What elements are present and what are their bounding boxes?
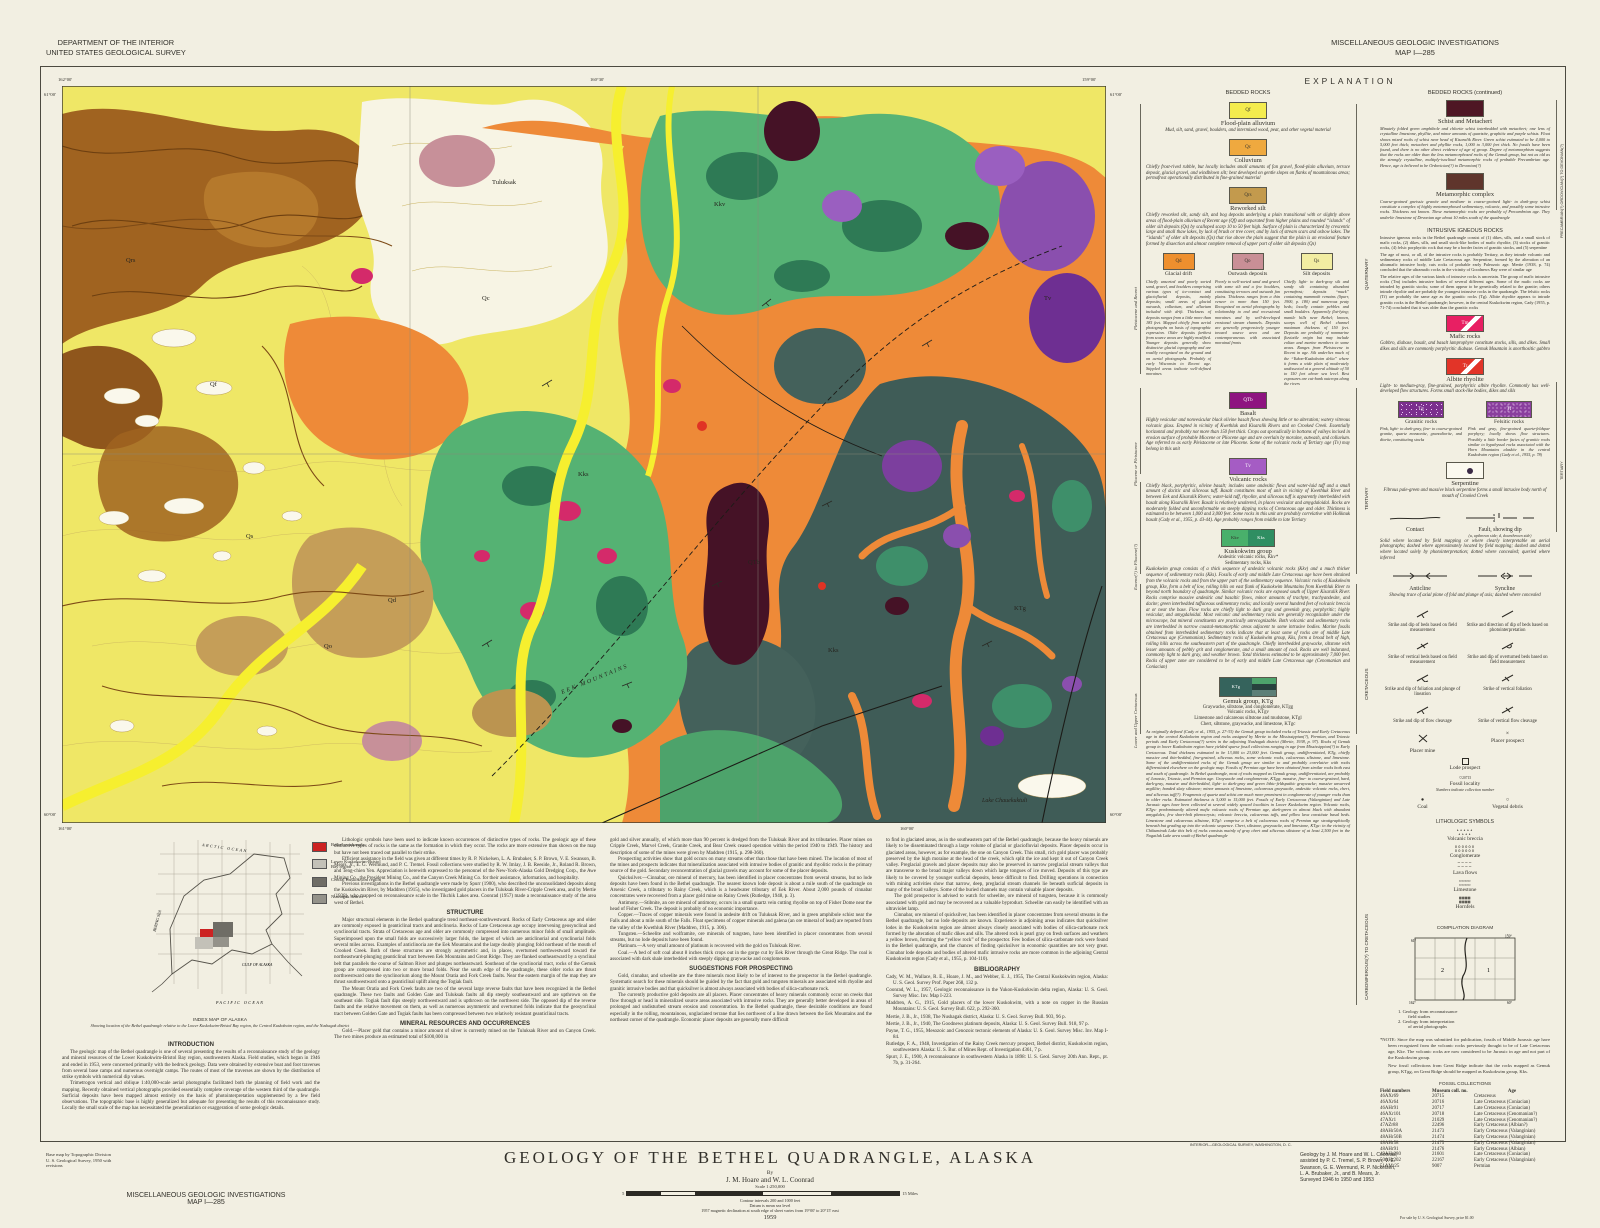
svg-text:d: d bbox=[1493, 518, 1495, 522]
pacific-ocean-label: PACIFIC OCEAN bbox=[215, 1000, 264, 1005]
strike-icon bbox=[1501, 641, 1515, 650]
swatch-meta bbox=[1446, 173, 1484, 190]
bedded-cont-title: BEDDED ROCKS (continued) bbox=[1380, 90, 1550, 96]
code-kks: Kks bbox=[1248, 530, 1274, 546]
desc-qd: Chiefly unsorted and poorly sorted sand,… bbox=[1146, 279, 1211, 376]
geology-credit: Geology by J. M. Hoare and W. L. Coonrad… bbox=[1300, 1152, 1480, 1183]
desc-qc: Chiefly frost-rived rubble, but locally … bbox=[1146, 165, 1350, 182]
desc-kuskokwim: Kuskokwim group consists of a thick sequ… bbox=[1146, 567, 1350, 670]
svg-text:Qs: Qs bbox=[246, 533, 254, 540]
strike-icon bbox=[1501, 705, 1515, 714]
col3-p8: Coal.—A bed of soft coal about 8 inches … bbox=[610, 951, 872, 964]
gemuk-subcells bbox=[1252, 678, 1276, 696]
strike-label: Strike of vertical foliation bbox=[1465, 687, 1550, 692]
placer-row: Placer mine ×Placer prospect bbox=[1380, 730, 1550, 754]
nushagak-swatch bbox=[312, 894, 327, 904]
code-qo: Qo bbox=[1244, 259, 1250, 264]
name-tv: Volcanic rocks bbox=[1146, 476, 1350, 483]
legend-unit-tv: Tv Volcanic rocks Chiefly black, porphyr… bbox=[1146, 458, 1350, 524]
lith-lava-flows: ∼∼∼∼∼∼∼∼ Lava flows bbox=[1380, 862, 1550, 876]
col4-p1: to find in glaciated areas, as in the so… bbox=[886, 838, 1108, 894]
strike-beds-field: Strike and dip of beds based on field me… bbox=[1380, 605, 1465, 633]
code-qc: Qc bbox=[1245, 145, 1251, 150]
outwash-patch-n bbox=[419, 135, 495, 187]
vegetal-label: Vegetal debris bbox=[1465, 804, 1550, 810]
desc-granitic: Pink, light- to dark-gray, fine- to coar… bbox=[1380, 426, 1462, 441]
strike-row-3: Strike and dip of foliation and plunge o… bbox=[1380, 669, 1550, 697]
svg-text:61°: 61° bbox=[1411, 939, 1417, 943]
bibliography-entry: Spurr, J. E., 1900, A reconnaissance in … bbox=[886, 1055, 1108, 1067]
strike-row-2: Strike of vertical beds based on field m… bbox=[1380, 637, 1550, 665]
series-header: MISCELLANEOUS GEOLOGIC INVESTIGATIONS MA… bbox=[1250, 38, 1580, 57]
age-tertiary-intrusive: TERTIARY bbox=[1560, 461, 1564, 480]
name-qf: Flood-plain alluvium bbox=[1146, 120, 1350, 127]
desc-gemuk: As originally defined (Cady et al., 1955… bbox=[1146, 729, 1350, 839]
strike-label: Strike of vertical flow cleavage bbox=[1465, 719, 1550, 724]
swatch-albite: Tr bbox=[1446, 358, 1484, 375]
dept-line2: UNITED STATES GEOLOGICAL SURVEY bbox=[46, 48, 186, 58]
svg-text:1: 1 bbox=[1487, 968, 1490, 974]
swatch-mafic: Tm bbox=[1446, 315, 1484, 332]
footer-series1: MISCELLANEOUS GEOLOGIC INVESTIGATIONS bbox=[46, 1192, 366, 1199]
svg-text:QTb: QTb bbox=[748, 559, 760, 566]
tick-right-top: 61°00' bbox=[1110, 92, 1122, 98]
bibliography-entry: Payne, T. G., 1955, Mesozoic and Cenozoi… bbox=[886, 1029, 1108, 1041]
swatch-qtb: QTb bbox=[1229, 392, 1267, 409]
strike-flow-cleavage: Strike and dip of flow cleavage bbox=[1380, 701, 1465, 724]
strike-icon bbox=[1501, 609, 1515, 618]
bracket-cretaceous bbox=[1356, 584, 1357, 734]
svg-text:159°: 159° bbox=[1505, 935, 1512, 939]
fossil-table-title: FOSSIL COLLECTIONS bbox=[1380, 1082, 1550, 1087]
title-scale: Scale 1:250,000 bbox=[420, 1184, 1120, 1189]
intro-p1: The geologic map of the Bethel quadrangl… bbox=[62, 1050, 320, 1081]
structure-title: STRUCTURE bbox=[334, 910, 596, 916]
name-qs: Silt deposits bbox=[1284, 271, 1349, 277]
lith-label: Limestone bbox=[1380, 887, 1550, 893]
col3-p2: Prospecting activities show that gold oc… bbox=[610, 857, 872, 876]
intrusive-p1: Intrusive igneous rocks in the Bethel qu… bbox=[1380, 235, 1550, 251]
lith-label: Lava flows bbox=[1380, 870, 1550, 876]
age-carb: CARBONIFEROUS(?) TO CRETACEOUS bbox=[1364, 914, 1370, 1000]
strike-label: Strike and dip of overturned beds based … bbox=[1465, 655, 1550, 665]
outwash-patch-s bbox=[362, 721, 422, 761]
conglomerate-icon: oooooooooooo bbox=[1380, 845, 1550, 853]
svg-text:60°: 60° bbox=[1507, 1001, 1513, 1005]
tick-top-right: 159°00' bbox=[1082, 77, 1096, 83]
strike-icon bbox=[1416, 641, 1430, 650]
volcanic-breccia-icon: ▴▴▴▴▴▴▴▴▴ bbox=[1380, 828, 1550, 836]
placer-prospect-item: ×Placer prospect bbox=[1465, 730, 1550, 754]
code-qf: Qf bbox=[1245, 108, 1250, 113]
compilation-item2b: of aerial photographs bbox=[1408, 1024, 1550, 1029]
name-kuskokwim: Kuskokwim group bbox=[1146, 548, 1350, 555]
lode-prospect-icon bbox=[1462, 758, 1469, 765]
legend-unit-albite: Tr Albite rhyolite Light- to medium-gray… bbox=[1380, 358, 1550, 396]
code-tv: Tv bbox=[1245, 464, 1251, 469]
intro-p2: Trimetrogon vertical and oblique 1:40,00… bbox=[62, 1081, 320, 1112]
basemap-line1: Base map by Topographic Division bbox=[46, 1152, 111, 1158]
bedded-rocks-title: BEDDED ROCKS bbox=[1146, 90, 1350, 96]
col3-p1: gold and silver annually, of which more … bbox=[610, 838, 872, 857]
footer-series2: MAP I—285 bbox=[46, 1199, 366, 1206]
map-title: GEOLOGY OF THE BETHEL QUADRANGLE, ALASKA bbox=[420, 1148, 1120, 1168]
strike-row-1: Strike and dip of beds based on field me… bbox=[1380, 605, 1550, 633]
legend-unit-qd: Qd Glacial drift Chiefly unsorted and po… bbox=[1146, 253, 1211, 386]
legend-unit-meta: Metamorphic complex Coarse-grained gneis… bbox=[1380, 173, 1550, 220]
legend-unit-qc: Qc Colluvium Chiefly frost-rived rubble,… bbox=[1146, 139, 1350, 182]
sugg-p2: The currently productive gold deposits a… bbox=[610, 993, 872, 1024]
bibliography-entry: Maddren, A. G., 1915, Gold placers of th… bbox=[886, 1001, 1108, 1013]
label-tuluksak: Tuluksak bbox=[492, 179, 517, 186]
central-kuskokwim-highlight bbox=[213, 922, 233, 937]
swatch-qo: Qo bbox=[1232, 253, 1264, 270]
col2-p3: Previous investigations in the Bethel qu… bbox=[334, 882, 596, 907]
bibliography-entry: Cady, W. M., Wallace, R. E., Hoare, J. M… bbox=[886, 975, 1108, 987]
desc-qrs: Chiefly reworked silt, sandy silt, and b… bbox=[1146, 213, 1350, 247]
strike-label: Strike and dip of foliation and plunge o… bbox=[1380, 687, 1465, 697]
syncline-item: Syncline bbox=[1460, 568, 1550, 592]
desc-qs: Chiefly light- to dark-gray silt and san… bbox=[1284, 279, 1349, 387]
swatch-gemuk: KTg bbox=[1219, 677, 1277, 697]
tick-bot-left: 161°00' bbox=[58, 826, 72, 832]
syncline-icon bbox=[1477, 571, 1533, 581]
name-meta: Metamorphic complex bbox=[1380, 191, 1550, 198]
fossil-sub: Numbers indicate collection number bbox=[1380, 787, 1550, 792]
svg-text:Qc: Qc bbox=[482, 295, 490, 302]
code-kkv: Kkv bbox=[1222, 530, 1248, 546]
scale-label: 5 bbox=[622, 1191, 624, 1196]
desc-schist: Minutely folded green amphibole and chlo… bbox=[1380, 126, 1550, 168]
column-minerals: gold and silver annually, of which more … bbox=[610, 838, 872, 1024]
coal-label: Coal bbox=[1380, 804, 1465, 810]
dept-line1: DEPARTMENT OF THE INTERIOR bbox=[46, 38, 186, 48]
col2-p2: Efficient assistance in the field was gi… bbox=[334, 857, 596, 882]
name-granitic: Granitic rocks bbox=[1380, 419, 1462, 425]
intrusive-title: INTRUSIVE IGNEOUS ROCKS bbox=[1380, 228, 1550, 234]
tick-bot-mid: 160°00' bbox=[900, 826, 914, 832]
legend-unit-serpentine: Serpentine Fibrous pale-green and massiv… bbox=[1380, 462, 1550, 500]
age-cretaceous: CRETACEOUS bbox=[1364, 668, 1370, 700]
tick-top-mid: 160°30' bbox=[590, 77, 604, 83]
gulf-alaska-label: GULF OF ALASKA bbox=[242, 963, 273, 967]
svg-text:u: u bbox=[1493, 512, 1495, 517]
limestone-icon: ▭▭▭▭▭▭▭▭ bbox=[1380, 879, 1550, 887]
coast-extensions bbox=[152, 944, 302, 992]
legend-trio: Qd Glacial drift Chiefly unsorted and po… bbox=[1146, 253, 1350, 386]
bibliography-entry: Mertie, J. B., Jr., 1940, The Goodnews p… bbox=[886, 1022, 1108, 1028]
age-pliocene: Pliocene or Pleistocene bbox=[1133, 442, 1139, 486]
name-qo: Outwash deposits bbox=[1215, 271, 1280, 277]
fault-sub: (u, upthrown side; d, downthrown side) bbox=[1450, 533, 1550, 538]
sub-ktgc: Chert, siltstone, graywacke, and limesto… bbox=[1146, 722, 1350, 728]
swatch-serpentine bbox=[1446, 462, 1484, 479]
legend-unit-mafic: Tm Mafic rocks Gabbro, diabase, basalt, … bbox=[1380, 315, 1550, 353]
swatch-tv: Tv bbox=[1229, 458, 1267, 475]
structure-p1: Major structural elements in the Bethel … bbox=[334, 918, 596, 987]
contact-label: Contact bbox=[1380, 527, 1450, 533]
strike-icon bbox=[1416, 673, 1430, 682]
bracket-pliocene bbox=[1140, 388, 1141, 474]
scale-label-end: 15 Miles bbox=[902, 1191, 918, 1196]
legend-unit-kuskokwim: Kkv Kks Kuskokwim group Andesitic volcan… bbox=[1146, 529, 1350, 671]
central-swatch bbox=[312, 877, 327, 887]
placer-prospect-icon: × bbox=[1465, 730, 1550, 738]
desc-qf: Mud, silt, sand, gravel, boulders, and i… bbox=[1146, 128, 1350, 134]
desc-qo: Poorly to well-sorted sand and gravel wi… bbox=[1215, 279, 1280, 346]
bracket-precambrian bbox=[1556, 100, 1557, 210]
code-ktg: KTg bbox=[1220, 678, 1252, 696]
geologic-map: Qf Qrs Qs Qd Qc Qo Kkv Kks KTg Tv QTb Kk… bbox=[62, 86, 1106, 823]
nushagak-highlight bbox=[213, 937, 229, 947]
desc-mafic: Gabbro, diabase, basalt, and basalt lamp… bbox=[1380, 341, 1550, 352]
legend-unit-granitic: Tg Granitic rocks Pink, light- to dark-g… bbox=[1380, 401, 1462, 457]
bracket-eocene bbox=[1140, 482, 1141, 574]
swatch-granitic: Tg bbox=[1398, 401, 1444, 418]
bethel-swatch bbox=[312, 842, 327, 852]
age-quaternary: QUATERNARY bbox=[1364, 259, 1370, 290]
bracket-quaternary bbox=[1356, 104, 1357, 380]
strike-icon bbox=[1501, 673, 1515, 682]
bibliography-list: Cady, W. M., Wallace, R. E., Hoare, J. M… bbox=[886, 975, 1108, 1067]
name-schist: Schist and Metachert bbox=[1380, 118, 1550, 125]
strike-foliation: Strike and dip of foliation and plunge o… bbox=[1380, 669, 1465, 697]
contact-item: Contact bbox=[1380, 509, 1450, 538]
age-eocene: Eocene(?) to Pliocene(?) bbox=[1133, 544, 1139, 590]
introduction-title: INTRODUCTION bbox=[62, 1042, 320, 1048]
swatch-schist bbox=[1446, 100, 1484, 117]
contact-fault-row: Contact ud Fault, showing dip (u, upthro… bbox=[1380, 509, 1550, 538]
fossil-item: ○20715 Fossil locality Numbers indicate … bbox=[1380, 775, 1550, 792]
strike-icon bbox=[1416, 705, 1430, 714]
svg-text:Qf: Qf bbox=[210, 381, 218, 388]
lith-label: Volcanic breccia bbox=[1380, 836, 1550, 842]
scale-bar-segments bbox=[626, 1191, 900, 1196]
name-serpentine: Serpentine bbox=[1380, 480, 1550, 487]
lith-label: Conglomerate bbox=[1380, 853, 1550, 859]
strike-icon bbox=[1416, 609, 1430, 618]
svg-text:2: 2 bbox=[1441, 968, 1444, 974]
coal-icon: ● bbox=[1380, 797, 1465, 804]
mineral-p1: Gold.—Placer gold that contains a minor … bbox=[334, 1029, 596, 1042]
col4-p2: The gold prospector is advised to watch … bbox=[886, 894, 1108, 913]
code-mafic: Tm bbox=[1462, 321, 1469, 326]
title-authors: J. M. Hoare and W. L. Coonrad bbox=[420, 1176, 1120, 1184]
bracket-lowup bbox=[1140, 584, 1141, 734]
col2-p1: Lithologic symbols have been used to ind… bbox=[334, 838, 596, 857]
strike-vert-flow: Strike of vertical flow cleavage bbox=[1465, 701, 1550, 724]
arctic-ocean-label: ARCTIC OCEAN bbox=[201, 842, 248, 853]
mineral-title: MINERAL RESOURCES AND OCCURRENCES bbox=[334, 1021, 596, 1027]
strike-label: Strike of vertical beds based on field m… bbox=[1380, 655, 1465, 665]
svg-text:Kks: Kks bbox=[828, 647, 839, 654]
code-qtb: QTb bbox=[1243, 398, 1252, 403]
strike-label: Strike and direction of dip of beds base… bbox=[1465, 623, 1550, 633]
label-lake: Lake Chauekuktuli bbox=[981, 798, 1027, 804]
legend-unit-qrs: Qrs Reworked silt Chiefly reworked silt,… bbox=[1146, 187, 1350, 247]
name-qc: Colluvium bbox=[1146, 157, 1350, 164]
series-line2: MAP I—285 bbox=[1250, 48, 1580, 58]
strike-beds-photo: Strike and direction of dip of beds base… bbox=[1465, 605, 1550, 633]
title-block: GEOLOGY OF THE BETHEL QUADRANGLE, ALASKA… bbox=[420, 1148, 1120, 1221]
suggestions-title: SUGGESTIONS FOR PROSPECTING bbox=[610, 966, 872, 972]
fault-item: ud Fault, showing dip (u, upthrown side;… bbox=[1450, 509, 1550, 538]
desc-meta: Coarse-grained gneissic granite and medi… bbox=[1380, 199, 1550, 220]
coal-item: ●Coal bbox=[1380, 797, 1465, 810]
legend-unit-schist: Schist and Metachert Minutely folded gre… bbox=[1380, 100, 1550, 168]
strike-overturned: Strike and dip of overturned beds based … bbox=[1465, 637, 1550, 665]
swatch-qc: Qc bbox=[1229, 139, 1267, 156]
placer-mine-label: Placer mine bbox=[1380, 748, 1465, 754]
desc-albite: Light- to medium-gray, fine-grained, por… bbox=[1380, 384, 1550, 395]
agency-header: DEPARTMENT OF THE INTERIOR UNITED STATES… bbox=[46, 38, 186, 57]
contact-line-icon bbox=[1389, 514, 1441, 522]
fossil-age: Permian bbox=[1474, 1164, 1550, 1170]
desc-qtb: Highly vesicular and nonvesicular black … bbox=[1146, 418, 1350, 452]
svg-text:162°: 162° bbox=[1409, 1001, 1416, 1005]
bibliography-title: BIBLIOGRAPHY bbox=[886, 967, 1108, 973]
column-bibliography: to find in glaciated areas, as in the so… bbox=[886, 838, 1108, 1068]
compilation-diagram: 21 61°159° 162°60° bbox=[1409, 934, 1521, 1006]
lower-kuskokwim-highlight bbox=[195, 937, 213, 949]
code-qd: Qd bbox=[1175, 259, 1181, 264]
desc-tv: Chiefly black, porphyritic, olivine basa… bbox=[1146, 484, 1350, 524]
fold-row: Anticline Syncline bbox=[1380, 568, 1550, 592]
name-gemuk: Gemuk group, KTg bbox=[1146, 698, 1350, 705]
bethel-quad-highlight bbox=[200, 929, 213, 937]
strike-label: Strike and dip of beds based on field me… bbox=[1380, 623, 1465, 633]
desc-serpentine: Fibrous pale-green and massive black ser… bbox=[1380, 488, 1550, 499]
age-tertiary: TERTIARY bbox=[1364, 487, 1370, 510]
svg-text:Kkv: Kkv bbox=[714, 201, 726, 208]
placer-prospect-label: Placer prospect bbox=[1465, 738, 1550, 744]
index-map-caption: INDEX MAP OF ALASKA Showing location of … bbox=[70, 1018, 370, 1028]
legend-bedded: BEDDED ROCKS Qf Flood-plain alluvium Mud… bbox=[1146, 90, 1350, 839]
code-felsitic: Tf bbox=[1507, 407, 1512, 412]
code-qs: Qs bbox=[1314, 259, 1320, 264]
lith-hornfels: ▩▩▩▩▩▩▩▩ Hornfels bbox=[1380, 896, 1550, 910]
bracket-tertiary-intrusive bbox=[1556, 382, 1557, 532]
fault-line-icon: ud bbox=[1465, 512, 1535, 522]
declination-note: 1957 magnetic declination at south edge … bbox=[420, 1208, 1120, 1213]
code-granitic: Tg bbox=[1418, 407, 1424, 412]
bibliography-entry: Rutledge, F. A., 1948, Investigation of … bbox=[886, 1042, 1108, 1054]
legend-unit-felsitic: Tf Felsitic rocks Pink and gray, fine-gr… bbox=[1468, 401, 1550, 457]
strike-vert-beds: Strike of vertical beds based on field m… bbox=[1380, 637, 1465, 665]
name-albite: Albite rhyolite bbox=[1380, 376, 1550, 383]
placer-mine-item: Placer mine bbox=[1380, 730, 1465, 754]
intrusive-p3: The relative ages of the various kinds o… bbox=[1380, 274, 1550, 311]
bibliography-entry: Coonrad, W. L., 1957, Geologic reconnais… bbox=[886, 988, 1108, 1000]
swatch-felsitic: Tf bbox=[1486, 401, 1532, 418]
col3-p6: Tungsten.—Scheelite and wolframite, ore … bbox=[610, 932, 872, 945]
legend-unit-qtb: QTb Basalt Highly vesicular and nonvesic… bbox=[1146, 392, 1350, 452]
strike-vert-foliation: Strike of vertical foliation bbox=[1465, 669, 1550, 697]
strike-row-4: Strike and dip of flow cleavage Strike o… bbox=[1380, 701, 1550, 724]
swatch-qs: Qs bbox=[1301, 253, 1333, 270]
vegetal-item: ○Vegetal debris bbox=[1465, 797, 1550, 810]
swatch-kuskokwim: Kkv Kks bbox=[1221, 529, 1275, 547]
fold-desc: Showing trace of axial plane of fold and… bbox=[1380, 593, 1550, 599]
svg-text:Tv: Tv bbox=[1044, 295, 1052, 302]
tick-top-left: 162°00' bbox=[58, 77, 72, 83]
code-albite: Tr bbox=[1463, 364, 1468, 369]
lith-conglomerate: oooooooooooo Conglomerate bbox=[1380, 845, 1550, 859]
index-caption-sub: Showing location of the Bethel quadrangl… bbox=[70, 1023, 370, 1028]
lith-volcanic-breccia: ▴▴▴▴▴▴▴▴▴ Volcanic breccia bbox=[1380, 828, 1550, 842]
footer-series: MISCELLANEOUS GEOLOGIC INVESTIGATIONS MA… bbox=[46, 1192, 366, 1206]
legend-bedded-continued: BEDDED ROCKS (continued) Schist and Meta… bbox=[1380, 90, 1550, 1170]
lower-swatch bbox=[312, 859, 327, 869]
desc-felsitic: Pink and gray, fine-grained quartz-felds… bbox=[1468, 426, 1550, 457]
map-sheet: DEPARTMENT OF THE INTERIOR UNITED STATES… bbox=[0, 0, 1600, 1228]
gemuk-patch bbox=[774, 328, 866, 404]
forsale-note: For sale by U. S. Geological Survey, pri… bbox=[1400, 1216, 1474, 1220]
credit-line5: Surveyed 1946 to 1950 and 1953 bbox=[1300, 1177, 1480, 1183]
name-qtb: Basalt bbox=[1146, 410, 1350, 417]
col4-p3: Cinnabar, ore mineral of quicksilver, ha… bbox=[886, 913, 1108, 963]
tick-left-top: 61°00' bbox=[44, 92, 56, 98]
col3-p3: Quicksilver.—Cinnabar, ore mineral of me… bbox=[610, 876, 872, 901]
bracket-tertiary bbox=[1356, 388, 1357, 574]
legend-unit-qf: Qf Flood-plain alluvium Mud, silt, sand,… bbox=[1146, 102, 1350, 134]
col3-p4: Antimony.—Stibnite, an ore mineral of an… bbox=[610, 901, 872, 914]
anticline-icon bbox=[1392, 571, 1448, 581]
index-map: ARCTIC OCEAN BERING SEA GULF OF ALASKA P… bbox=[150, 834, 310, 1016]
swatch-qd: Qd bbox=[1163, 253, 1195, 270]
scale-bar: 5 15 Miles bbox=[420, 1191, 1120, 1196]
svg-text:Qrs: Qrs bbox=[126, 257, 136, 264]
lith-label: Hornfels bbox=[1380, 904, 1550, 910]
bracket-pleistocene bbox=[1140, 104, 1141, 374]
publication-year: 1959 bbox=[420, 1214, 1120, 1221]
bibliography-entry: Mertie, J. B., Jr., 1938, The Nushagak d… bbox=[886, 1015, 1108, 1021]
interior-imprint: INTERIOR—GEOLOGICAL SURVEY, WASHINGTON, … bbox=[1190, 1143, 1292, 1147]
anticline-item: Anticline bbox=[1380, 568, 1460, 592]
lode-label: Lode prospect bbox=[1380, 765, 1550, 771]
coal-row: ●Coal ○Vegetal debris bbox=[1380, 797, 1550, 810]
placer-mine-icon bbox=[1417, 734, 1429, 743]
svg-text:KTg: KTg bbox=[1014, 605, 1027, 612]
code-qrs: Qrs bbox=[1244, 193, 1251, 198]
age-pleistocene: Pleistocene and Recent bbox=[1133, 287, 1139, 330]
series-line1: MISCELLANEOUS GEOLOGIC INVESTIGATIONS bbox=[1250, 38, 1580, 48]
legend-unit-qs: Qs Silt deposits Chiefly light- to dark-… bbox=[1284, 253, 1349, 386]
legend-unit-qo: Qo Outwash deposits Poorly to well-sorte… bbox=[1215, 253, 1280, 386]
compilation-title: COMPILATION DIAGRAM bbox=[1380, 926, 1550, 931]
sugg-p1: Gold, cinnabar, and scheelite are the th… bbox=[610, 974, 872, 993]
compilation-legend: 1. Geology from reconnaissance field stu… bbox=[1398, 1009, 1550, 1029]
age-lowup: Lower and Upper Cretaceous bbox=[1133, 693, 1139, 748]
fault-desc: Solid where located by field mapping or … bbox=[1380, 539, 1550, 562]
column-introduction: INTRODUCTION The geologic map of the Bet… bbox=[62, 1042, 320, 1113]
svg-text:Qd: Qd bbox=[388, 597, 397, 604]
svg-text:Kks: Kks bbox=[578, 471, 589, 478]
structure-p2: The Mount Oratia and Fork Creek faults a… bbox=[334, 987, 596, 1018]
name-mafic: Mafic rocks bbox=[1380, 333, 1550, 340]
basemap-line3: revisions bbox=[46, 1163, 111, 1169]
intrusive-p2: The age of most, or all, of the intrusiv… bbox=[1380, 252, 1550, 273]
strike-label: Strike and dip of flow cleavage bbox=[1380, 719, 1465, 724]
bering-sea-label: BERING SEA bbox=[152, 909, 163, 932]
lode-item: Lode prospect bbox=[1380, 758, 1550, 771]
legend-granitic-felsitic: Tg Granitic rocks Pink, light- to dark-g… bbox=[1380, 401, 1550, 457]
name-qrs: Reworked silt bbox=[1146, 205, 1350, 212]
swatch-qrs: Qrs bbox=[1229, 187, 1267, 204]
name-qd: Glacial drift bbox=[1146, 271, 1211, 277]
lith-limestone: ▭▭▭▭▭▭▭▭ Limestone bbox=[1380, 879, 1550, 893]
bracket-carb bbox=[1356, 745, 1357, 1005]
